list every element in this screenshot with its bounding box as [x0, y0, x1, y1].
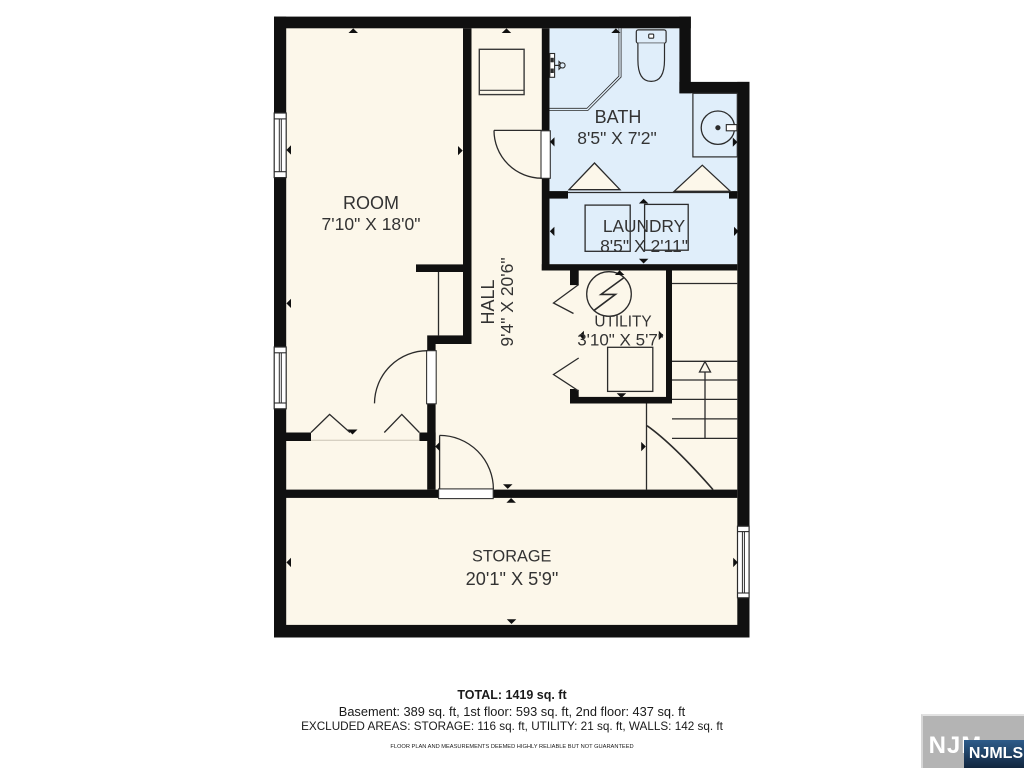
svg-text:8'5" X 7'2": 8'5" X 7'2": [577, 128, 656, 148]
svg-text:8'5" X 2'11": 8'5" X 2'11": [600, 236, 688, 256]
svg-text:ROOM: ROOM: [343, 193, 399, 213]
svg-text:BATH: BATH: [595, 107, 642, 127]
svg-text:7'10" X 18'0": 7'10" X 18'0": [322, 214, 421, 234]
svg-text:STORAGE: STORAGE: [472, 547, 551, 565]
svg-text:3'10" X 5'7": 3'10" X 5'7": [577, 331, 664, 350]
svg-text:9'4" X 20'6": 9'4" X 20'6": [497, 257, 517, 346]
svg-text:HALL: HALL: [478, 279, 498, 324]
svg-text:LAUNDRY: LAUNDRY: [603, 216, 686, 236]
svg-text:20'1" X 5'9": 20'1" X 5'9": [466, 569, 559, 589]
svg-text:UTILITY: UTILITY: [594, 313, 651, 330]
